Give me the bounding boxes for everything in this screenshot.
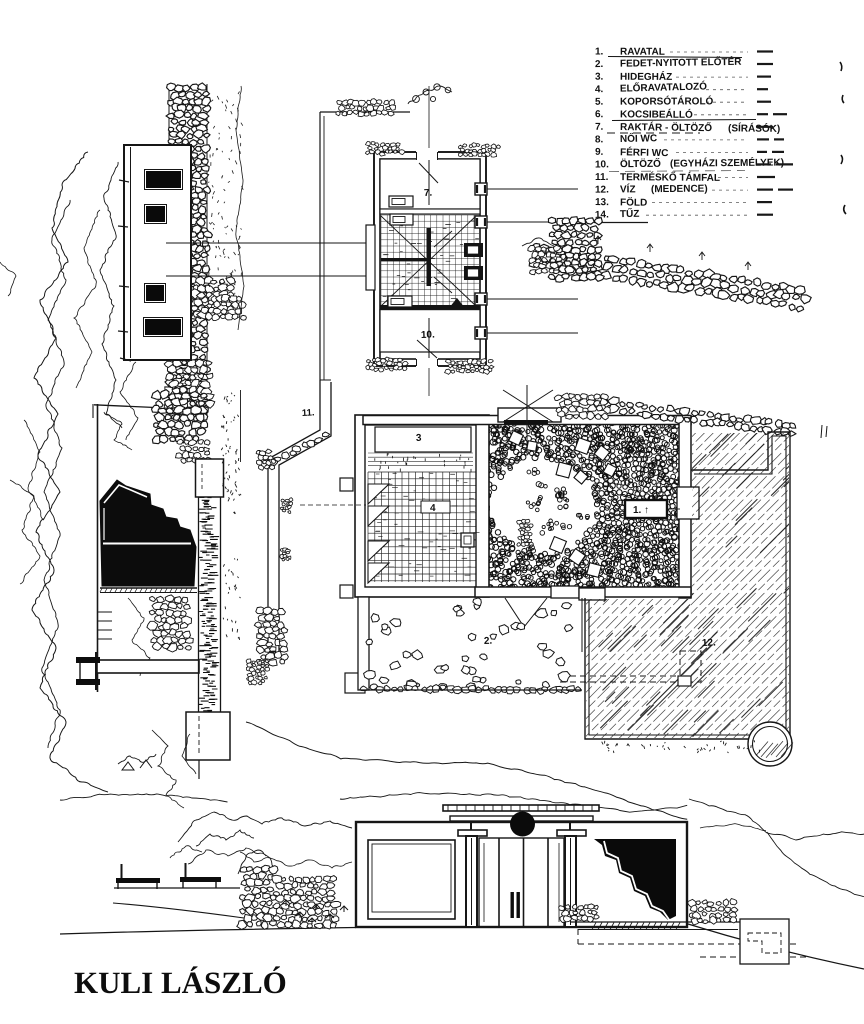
svg-text:7.: 7.: [595, 122, 604, 133]
svg-text:4: 4: [430, 503, 436, 514]
svg-text:1. ↑: 1. ↑: [633, 505, 649, 516]
svg-text:RAVATAL: RAVATAL: [620, 47, 665, 58]
svg-text:ELŐRAVATALOZÓ: ELŐRAVATALOZÓ: [620, 80, 708, 94]
svg-text:RAKTÁR - ÖLTÖZŐ: RAKTÁR - ÖLTÖZŐ: [620, 121, 712, 134]
svg-text:10.: 10.: [595, 159, 609, 170]
svg-text:7.: 7.: [424, 188, 433, 199]
svg-text:KOCSIBEÁLLÓ: KOCSIBEÁLLÓ: [620, 108, 693, 121]
svg-text:(EGYHÁZI SZEMÉLYEK): (EGYHÁZI SZEMÉLYEK): [670, 157, 784, 170]
svg-text:8.: 8.: [595, 134, 604, 145]
svg-text:HIDEGHÁZ: HIDEGHÁZ: [620, 71, 672, 83]
svg-text:13.: 13.: [595, 197, 609, 208]
svg-text:2.: 2.: [595, 59, 604, 70]
svg-text:4.: 4.: [595, 84, 604, 95]
svg-text:ÖLTÖZŐ: ÖLTÖZŐ: [620, 158, 661, 170]
svg-text:9.: 9.: [595, 147, 604, 158]
svg-text:11.: 11.: [302, 407, 315, 419]
svg-text:(SÍRÁSÓK): (SÍRÁSÓK): [728, 122, 780, 135]
svg-text:12.: 12.: [702, 638, 716, 649]
svg-text:FÖLD: FÖLD: [620, 196, 647, 208]
svg-text:12.: 12.: [595, 185, 609, 196]
svg-text:10.: 10.: [421, 330, 435, 341]
svg-text:KOPORSÓTÁROLÓ: KOPORSÓTÁROLÓ: [620, 95, 714, 107]
svg-text:11.: 11.: [595, 172, 609, 183]
svg-text:6.: 6.: [595, 109, 604, 120]
svg-text:KULI LÁSZLÓ: KULI LÁSZLÓ: [74, 965, 287, 1000]
svg-text:5.: 5.: [595, 97, 604, 108]
svg-text:TŰZ: TŰZ: [620, 208, 640, 220]
svg-text:FÉRFI WC: FÉRFI WC: [620, 146, 669, 159]
svg-text:1.: 1.: [595, 46, 604, 57]
svg-text:2.: 2.: [484, 636, 493, 647]
svg-text:3: 3: [416, 433, 422, 444]
svg-text:TERMÉSKŐ TÁMFAL: TERMÉSKŐ TÁMFAL: [620, 171, 720, 184]
svg-text:(MEDENCE): (MEDENCE): [651, 184, 708, 196]
svg-text:3.: 3.: [595, 72, 604, 83]
svg-text:NŐI WC: NŐI WC: [620, 132, 657, 145]
svg-text:VÍZ: VÍZ: [620, 183, 636, 195]
